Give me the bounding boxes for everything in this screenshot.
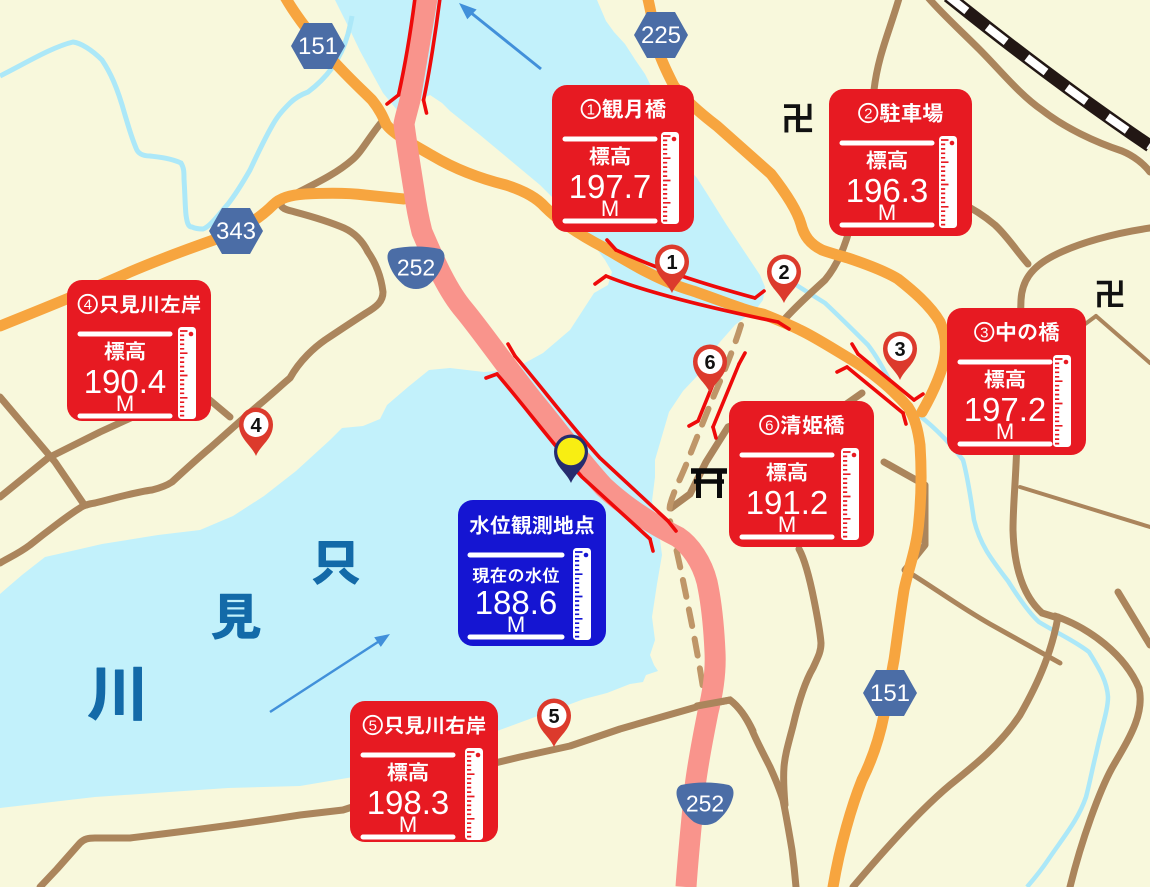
- svg-text:4: 4: [84, 297, 92, 314]
- svg-text:1: 1: [587, 102, 595, 119]
- svg-text:2: 2: [778, 262, 789, 284]
- svg-text:1: 1: [666, 252, 677, 274]
- svg-text:6: 6: [704, 352, 715, 374]
- svg-text:5: 5: [548, 706, 559, 728]
- svg-text:3: 3: [980, 325, 988, 342]
- svg-text:151: 151: [298, 33, 338, 60]
- svg-text:6: 6: [765, 418, 773, 435]
- svg-text:252: 252: [686, 791, 724, 817]
- svg-text:M: M: [507, 612, 525, 637]
- svg-text:343: 343: [216, 218, 256, 245]
- svg-text:M: M: [878, 200, 896, 225]
- svg-text:4: 4: [250, 415, 262, 437]
- svg-text:M: M: [116, 391, 134, 416]
- svg-text:M: M: [778, 512, 796, 537]
- svg-text:M: M: [601, 196, 619, 221]
- svg-text:M: M: [399, 812, 417, 837]
- svg-text:M: M: [996, 419, 1014, 444]
- svg-text:151: 151: [870, 680, 910, 707]
- svg-text:5: 5: [369, 718, 377, 735]
- svg-text:3: 3: [894, 339, 905, 361]
- svg-text:2: 2: [864, 106, 872, 123]
- svg-text:252: 252: [397, 255, 435, 281]
- svg-text:225: 225: [641, 22, 681, 49]
